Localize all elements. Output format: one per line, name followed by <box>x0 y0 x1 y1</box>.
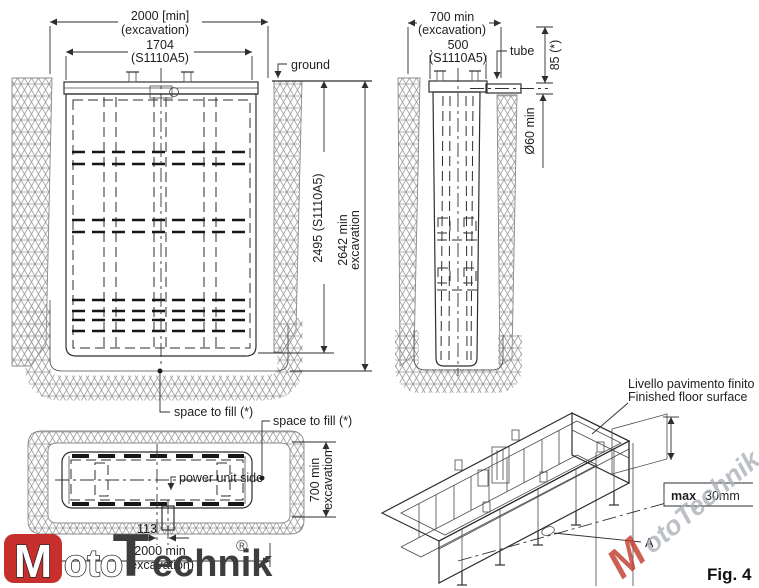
drawing-canvas: ground 2000 [min] <box>0 0 759 588</box>
dim-unit-width: 1704 (S1110A5) <box>66 38 252 80</box>
dim-tube-diameter: Ø60 min <box>523 94 553 168</box>
dim-unit-depth-text: 2495 (S1110A5) <box>311 173 325 262</box>
dim-tube-height-text: 85 (*) <box>548 40 562 71</box>
floor-level-label-it: Livello pavimento finito <box>628 377 755 391</box>
earth-bottom-band <box>38 305 290 388</box>
earth-left-wall <box>398 78 420 366</box>
tube-leader <box>497 51 507 79</box>
anchor-bolts <box>126 72 194 82</box>
floor-label-leader <box>592 403 628 434</box>
dim-tube-height: 85 (*) <box>536 27 562 83</box>
watermark-text: otoTechnik.pl <box>637 424 759 559</box>
earth-right-wall <box>274 81 302 352</box>
excavation-bottom-line <box>50 300 288 371</box>
dim-excavation-depth-note: excavation <box>321 450 335 510</box>
dim-excavation-width-value: 2000 [min] <box>131 9 189 23</box>
dim-excavation-width-note: (excavation) <box>121 23 189 37</box>
floor-plane <box>612 414 667 474</box>
dim-unit-width-value: 1704 <box>146 38 174 52</box>
dim-unit-width-note: (S1110A5) <box>429 51 487 65</box>
cassette-columns <box>104 97 216 352</box>
near-wall-posts <box>462 449 614 571</box>
anchor-bolts <box>434 71 481 81</box>
isometric-view: Livello pavimento finito Finished floor … <box>382 377 755 586</box>
interior-bracket <box>478 447 509 486</box>
logo-letter-m: M <box>14 535 52 587</box>
excavation-bottom-line <box>414 330 503 370</box>
point-a-marker <box>541 525 556 537</box>
logo-letter-t: T <box>113 522 150 588</box>
front-view: ground 2000 [min] <box>12 9 372 419</box>
ground-label: ground <box>291 58 330 72</box>
frame-end-face <box>572 413 629 483</box>
figure-label: Fig. 4 <box>707 565 752 584</box>
floor-level-label-en: Finished floor surface <box>628 390 748 404</box>
ground-leader <box>278 64 287 78</box>
earth-bottom-band <box>407 330 510 381</box>
side-view: tube 700 min (excavation) 500 (S1110A5) … <box>398 10 562 381</box>
power-unit-label: power unit side <box>179 471 263 485</box>
technical-drawing-page: ground 2000 [min] <box>0 0 759 588</box>
dim-excavation-width-note: (excavation) <box>418 23 486 37</box>
earth-right-wall <box>497 95 517 366</box>
space-to-fill-label: space to fill (*) <box>273 414 352 428</box>
dim-unit-width-note: (S1110A5) <box>131 51 189 65</box>
logo-registered-mark: ® <box>236 538 248 555</box>
logo-echnik: echnik <box>152 543 273 585</box>
dim-excavation-depth-value: 700 min <box>308 458 322 503</box>
dim-excavation-width-value: 700 min <box>430 10 475 24</box>
rim-brackets <box>455 430 604 512</box>
dim-unit-width-value: 500 <box>448 38 469 52</box>
tube-label: tube <box>510 44 534 58</box>
dim-excavation-depth-note: excavation <box>348 210 362 270</box>
dim-tube-diameter-text: Ø60 min <box>523 107 537 154</box>
space-to-fill-label: space to fill (*) <box>174 405 253 419</box>
